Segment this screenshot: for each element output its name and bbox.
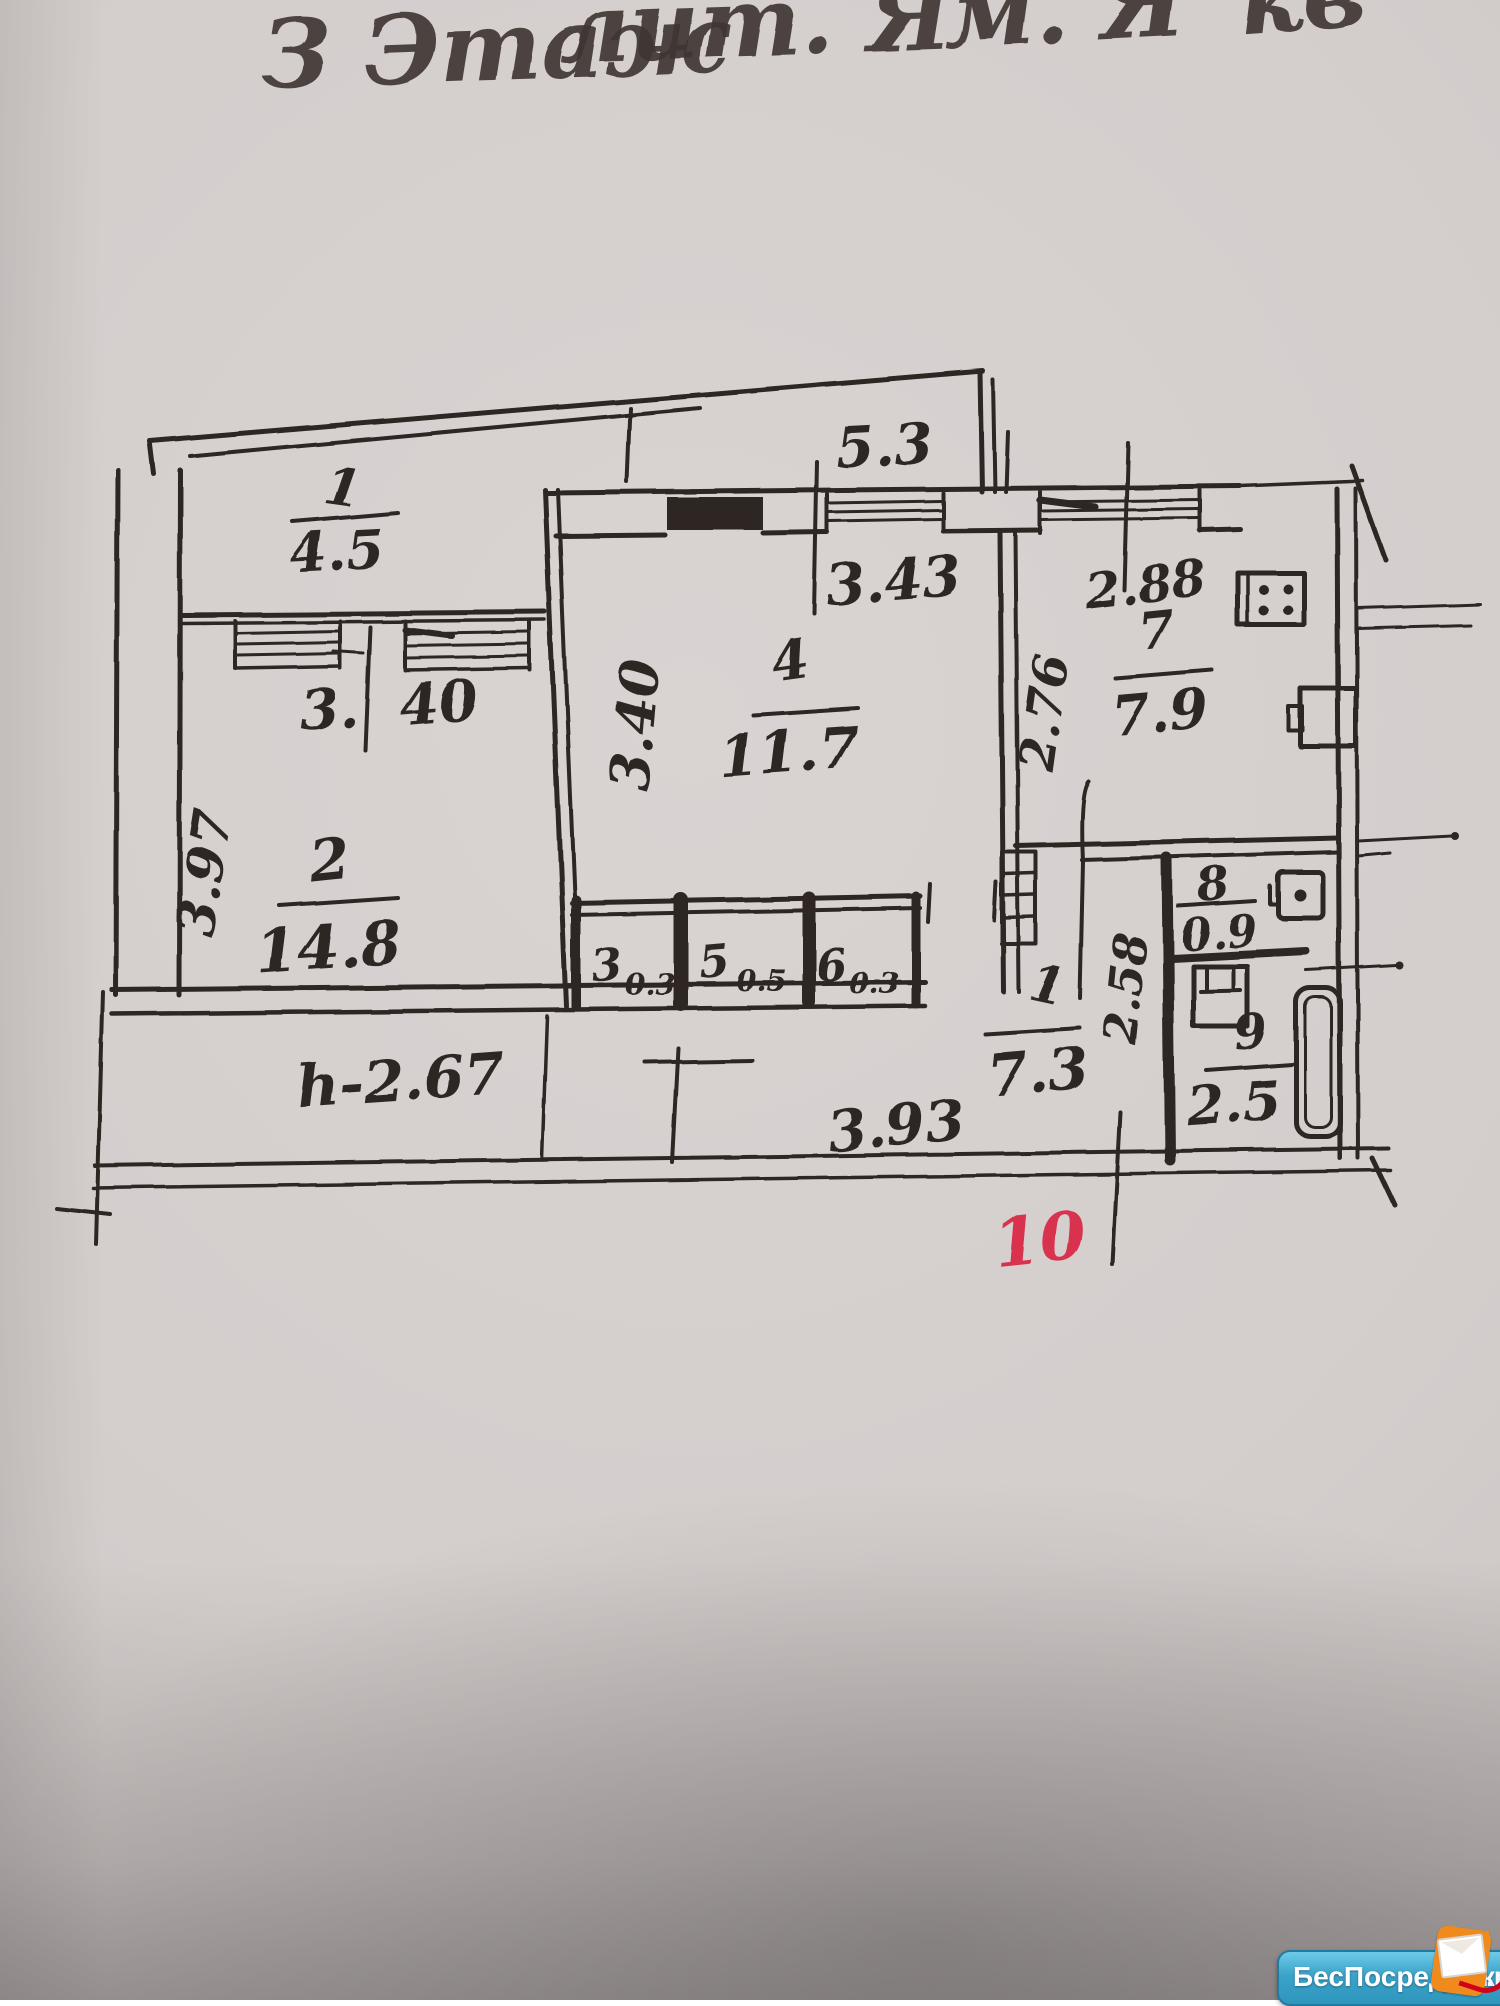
hallway-number: 1 <box>1024 952 1070 1017</box>
dim-bedroom-window: 3.43 <box>823 543 964 618</box>
header-fragment-2: лит. Я <box>557 0 957 85</box>
red-mark-10: 10 <box>990 1196 1090 1283</box>
bathroom-number: 9 <box>1231 1002 1270 1061</box>
dim-living-window-b: 40 <box>397 667 480 740</box>
closet-b-number: 5 <box>697 936 732 989</box>
dim-balcony-top: 5.3 <box>834 411 935 482</box>
balcony-door-block <box>667 497 763 530</box>
stove-icon <box>1238 573 1304 625</box>
living-area: 14.8 <box>253 908 404 988</box>
dim-bedroom-depth: 3.40 <box>597 657 672 794</box>
dim-bath-column-depth: 2.58 <box>1093 930 1159 1048</box>
watermark-mascot-icon <box>1428 1922 1494 1998</box>
kitchen-sink-icon <box>1288 688 1356 746</box>
dim-kitchen-depth: 2.76 <box>1008 650 1080 775</box>
living-number: 2 <box>305 824 353 896</box>
header-fragment-4: кв <box>1234 0 1370 57</box>
ceiling-height-note: h-2.67 <box>295 1039 507 1121</box>
closet-b-area: 0.5 <box>737 964 787 998</box>
kitchen-area: 7.9 <box>1109 676 1212 750</box>
closet-c-number: 6 <box>813 939 848 992</box>
bathroom-area: 2.5 <box>1184 1068 1283 1138</box>
closet-a-area: 0.3 <box>625 967 675 1001</box>
bedroom-number: 4 <box>766 625 812 694</box>
dim-kitchen-window: 2.88 <box>1081 548 1210 622</box>
balcony-area: 4.5 <box>288 517 385 586</box>
closet-c-area: 0.3 <box>849 966 899 1000</box>
header-handwriting: З Этаж лит. Я м. Я кв <box>259 0 1369 111</box>
floor-plan-drawing: З Этаж лит. Я м. Я кв <box>0 0 1500 2000</box>
closet-a-number: 3 <box>589 939 624 992</box>
dim-living-depth: 3.97 <box>165 805 245 940</box>
balcony-number: 1 <box>320 455 364 520</box>
wc-area: 0.9 <box>1179 905 1259 961</box>
dim-living-window-a: 3. <box>298 675 360 744</box>
toilet-icon <box>1270 872 1323 918</box>
bedroom-area: 11.7 <box>716 713 862 791</box>
bathtub-icon <box>1296 988 1340 1136</box>
hallway-area: 7.3 <box>985 1034 1091 1111</box>
header-fragment-3: м. Я <box>940 0 1192 71</box>
